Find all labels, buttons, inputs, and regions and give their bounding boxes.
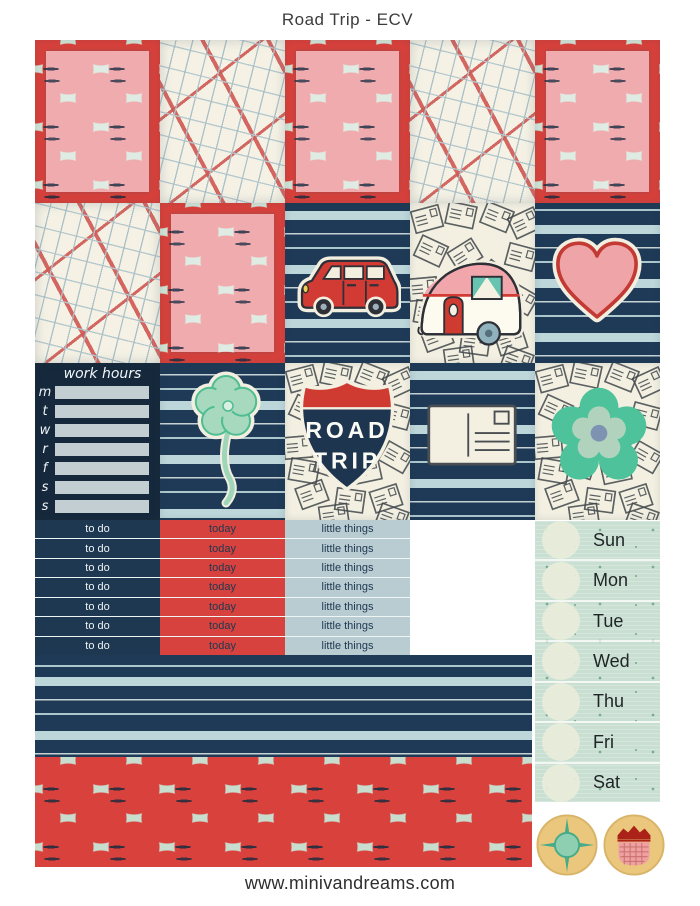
little-things-label: little things — [285, 637, 410, 655]
day-circle — [542, 764, 580, 802]
car-fullbox — [285, 203, 410, 363]
day-circle — [542, 562, 580, 600]
hours-bar — [55, 424, 149, 437]
work-hours-tracker: work hours m t w r f s s — [35, 363, 160, 520]
today-label: today — [160, 578, 285, 596]
todo-strips: to dotodaylittle things to dotodaylittle… — [35, 520, 410, 655]
work-hours-row: s — [35, 497, 160, 516]
heart-icon — [547, 233, 647, 328]
flower-fullbox — [160, 363, 285, 520]
polka-fullbox — [35, 40, 160, 203]
little-things-label: little things — [285, 520, 410, 538]
polka-inset — [296, 51, 399, 192]
camper-icon — [416, 249, 528, 351]
postcard-fullbox — [410, 363, 535, 520]
day-letter: f — [35, 461, 55, 476]
sticker-sheet-page: Road Trip - ECV — [0, 0, 700, 906]
strip-row: to dotodaylittle things — [35, 539, 410, 558]
washi-blank-block — [410, 520, 532, 655]
work-hours-row: f — [35, 459, 160, 478]
day-letter: m — [35, 385, 55, 400]
teal-flower-icon — [548, 383, 650, 489]
hours-bar — [55, 443, 149, 456]
day-row: Tue — [535, 602, 660, 642]
little-things-label: little things — [285, 598, 410, 616]
today-label: today — [160, 520, 285, 538]
hours-bar — [55, 481, 149, 494]
day-circle — [542, 723, 580, 761]
day-label: Sat — [593, 772, 620, 793]
day-circle — [542, 602, 580, 640]
day-row: Sat — [535, 764, 660, 802]
work-hours-row: t — [35, 402, 160, 421]
hours-bar — [55, 500, 149, 513]
little-things-label: little things — [285, 617, 410, 635]
map-fullbox — [160, 40, 285, 203]
day-row: Fri — [535, 723, 660, 763]
picnic-basket-icon — [603, 814, 665, 876]
today-label: today — [160, 637, 285, 655]
strip-row: to dotodaylittle things — [35, 617, 410, 636]
road-trip-fullbox: ROAD TRIP — [285, 363, 410, 520]
work-hours-row: r — [35, 440, 160, 459]
strip-row: to dotodaylittle things — [35, 559, 410, 578]
day-letter: w — [35, 423, 55, 438]
strip-row: to dotodaylittle things — [35, 578, 410, 597]
strip-row: to dotodaylittle things — [35, 637, 410, 655]
todo-label: to do — [35, 578, 160, 596]
hours-bar — [55, 462, 149, 475]
day-label: Mon — [593, 570, 628, 591]
polka-inset — [171, 214, 274, 352]
today-label: today — [160, 598, 285, 616]
todo-label: to do — [35, 559, 160, 577]
day-circle — [542, 642, 580, 680]
polka-fullbox — [285, 40, 410, 203]
day-letter: s — [35, 480, 55, 495]
day-label: Tue — [593, 611, 623, 632]
page-title: Road Trip - ECV — [35, 10, 660, 30]
work-hours-row: m — [35, 383, 160, 402]
strip-row: to dotodaylittle things — [35, 598, 410, 617]
day-label: Thu — [593, 691, 624, 712]
day-letter: t — [35, 404, 55, 419]
hours-bar — [55, 405, 149, 418]
footer-url: www.minivandreams.com — [0, 873, 700, 894]
teal-flower-fullbox — [535, 363, 660, 520]
day-label: Wed — [593, 651, 630, 672]
car-icon — [293, 251, 401, 323]
day-row: Thu — [535, 683, 660, 723]
day-label: Sun — [593, 530, 625, 551]
day-circle — [542, 683, 580, 721]
day-row: Mon — [535, 561, 660, 601]
polka-fullbox — [535, 40, 660, 203]
today-label: today — [160, 539, 285, 557]
road-trip-shield-icon: ROAD TRIP — [297, 375, 397, 497]
todo-label: to do — [35, 539, 160, 557]
road-sign-line1: ROAD — [305, 417, 388, 443]
work-hours-row: s — [35, 478, 160, 497]
postcard-icon — [425, 401, 519, 469]
day-labels-column: Sun Mon Tue Wed Thu Fri Sat — [535, 521, 660, 802]
day-letter: r — [35, 442, 55, 457]
today-label: today — [160, 617, 285, 635]
polka-inset — [46, 51, 149, 192]
day-circle — [542, 521, 580, 559]
heart-fullbox — [535, 203, 660, 363]
polka-fullbox — [160, 203, 285, 363]
todo-label: to do — [35, 637, 160, 655]
strip-row: to dotodaylittle things — [35, 520, 410, 539]
compass-star-icon — [536, 814, 598, 876]
work-hours-title: work hours — [35, 363, 160, 383]
polka-inset — [546, 51, 649, 192]
day-label: Fri — [593, 732, 614, 753]
day-row: Sun — [535, 521, 660, 561]
today-label: today — [160, 559, 285, 577]
little-things-label: little things — [285, 539, 410, 557]
mint-flower-icon — [184, 369, 269, 511]
todo-label: to do — [35, 617, 160, 635]
polka-dot-strip — [35, 757, 532, 867]
navy-stripe-strip — [35, 655, 532, 757]
little-things-label: little things — [285, 578, 410, 596]
todo-label: to do — [35, 598, 160, 616]
work-hours-row: w — [35, 421, 160, 440]
camper-fullbox — [410, 203, 535, 363]
map-fullbox — [35, 203, 160, 363]
map-fullbox — [410, 40, 535, 203]
day-row: Wed — [535, 642, 660, 682]
little-things-label: little things — [285, 559, 410, 577]
day-letter: s — [35, 499, 55, 514]
hours-bar — [55, 386, 149, 399]
road-sign-line2: TRIP — [313, 448, 381, 474]
todo-label: to do — [35, 520, 160, 538]
